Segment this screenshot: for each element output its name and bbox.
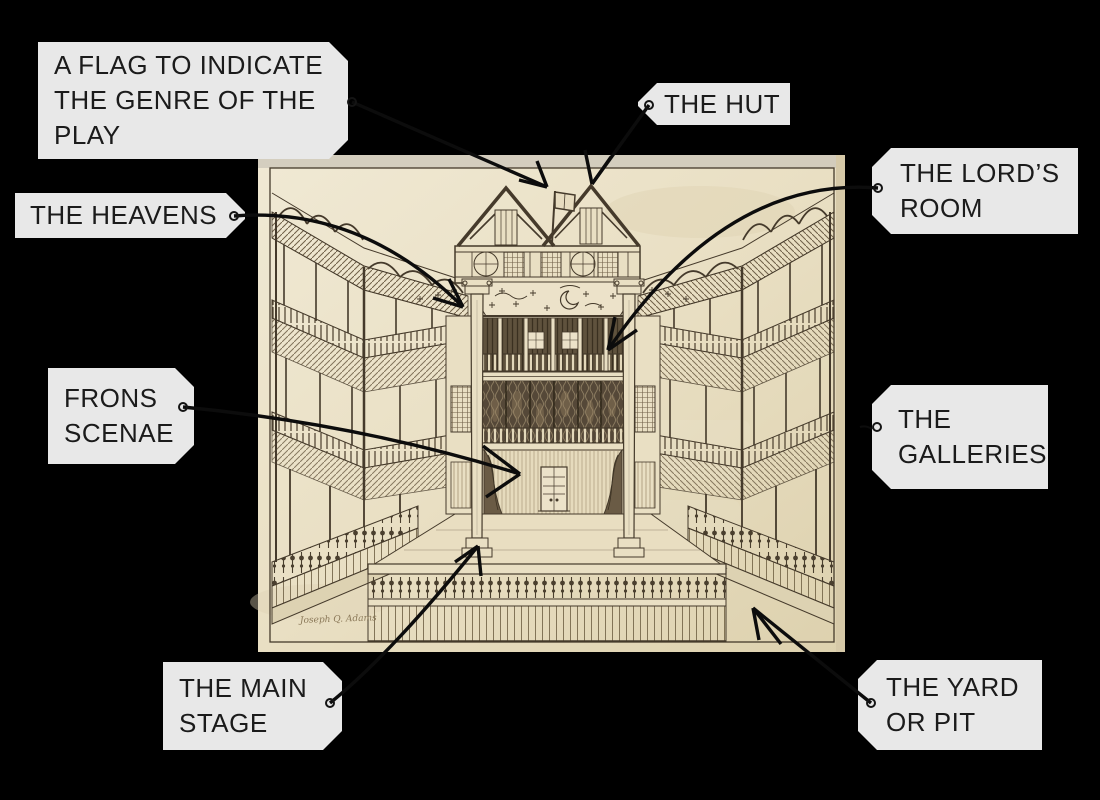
label-text: THE HUT — [664, 87, 790, 122]
label-text: THE — [898, 402, 1048, 437]
label-text: SCENAE — [64, 416, 194, 451]
label-frons-scenae: FRONS SCENAE — [48, 368, 194, 464]
label-the-hut: THE HUT — [638, 83, 790, 125]
label-text: OR PIT — [886, 705, 1042, 740]
diagram-canvas: Joseph Q. Adams A FLAG TO INDICATE THE G… — [0, 0, 1100, 800]
label-yard-pit: THE YARD OR PIT — [858, 660, 1042, 750]
label-text: A FLAG TO INDICATE — [54, 48, 348, 83]
label-text: THE YARD — [886, 670, 1042, 705]
label-flag-genre: A FLAG TO INDICATE THE GENRE OF THE PLAY — [38, 42, 348, 159]
label-lords-room: THE LORD’S ROOM — [872, 148, 1078, 234]
tapestry-level — [480, 381, 626, 450]
label-text: THE MAIN — [179, 671, 342, 706]
label-text: THE HEAVENS — [30, 198, 245, 233]
label-text: GALLERIES — [898, 437, 1048, 472]
label-text: STAGE — [179, 706, 342, 741]
lords-room-gallery — [480, 318, 626, 381]
label-main-stage: THE MAIN STAGE — [163, 662, 342, 750]
label-the-galleries: THE GALLERIES — [872, 385, 1048, 489]
label-text: ROOM — [900, 191, 1078, 226]
label-text: THE LORD’S — [900, 156, 1078, 191]
label-text: FRONS — [64, 381, 194, 416]
frons-scenae-wall — [482, 450, 624, 514]
label-the-heavens: THE HEAVENS — [15, 193, 245, 238]
label-text: PLAY — [54, 118, 348, 153]
label-text: THE GENRE OF THE — [54, 83, 348, 118]
